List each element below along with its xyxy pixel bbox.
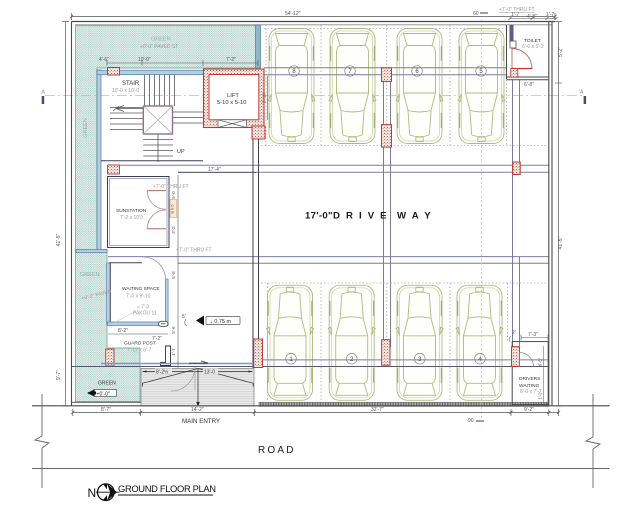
svg-text:UP: UP (177, 149, 185, 155)
svg-text:GREEN: GREEN (80, 272, 100, 278)
svg-text:8'-2½: 8'-2½ (156, 369, 169, 376)
svg-text:9'-7": 9'-7" (56, 370, 62, 380)
svg-text:D R I V E W A Y: D R I V E W A Y (333, 211, 432, 222)
svg-text:7'-3": 7'-3" (528, 332, 538, 338)
svg-text:14'-2": 14'-2" (191, 407, 204, 413)
svg-text:10'-0 x 10'-0: 10'-0 x 10'-0 (112, 88, 139, 94)
svg-text:6'-5": 6'-5" (538, 357, 543, 366)
svg-text:54'-12": 54'-12" (285, 11, 301, 17)
svg-text:1'-7: 1'-7 (171, 348, 176, 356)
svg-text:SUNSTATION: SUNSTATION (116, 208, 147, 214)
svg-text:2': 2' (512, 330, 516, 336)
svg-text:6'-8": 6'-8" (524, 82, 534, 88)
svg-text:+7'-0" THRU FT: +7'-0" THRU FT (153, 184, 189, 190)
svg-text:5'-6: 5'-6 (171, 326, 176, 334)
svg-text:8'-2": 8'-2" (118, 328, 128, 334)
svg-text:4'-6": 4'-6" (99, 57, 109, 63)
svg-text:MAIN ENTRY: MAIN ENTRY (182, 418, 220, 425)
svg-text:GREEN: GREEN (83, 118, 89, 138)
svg-text:4'-8": 4'-8" (527, 14, 537, 20)
svg-text:1'-7: 1'-7 (546, 12, 554, 18)
svg-text:90: 90 (468, 418, 474, 424)
svg-text:LIFT: LIFT (227, 93, 239, 99)
svg-text:7'-0 x 9'-10: 7'-0 x 9'-10 (126, 294, 151, 300)
svg-text:1'-2: 1'-2 (538, 392, 543, 400)
svg-text:7'-12 x 6'-7: 7'-12 x 6'-7 (127, 348, 152, 354)
svg-text:WAITING SPACE: WAITING SPACE (122, 286, 160, 292)
svg-text:5'-10: 5'-10 (262, 93, 267, 103)
svg-text:9'-2": 9'-2" (524, 407, 534, 413)
svg-text:17'-0": 17'-0" (305, 211, 333, 222)
svg-text:B 0-5: B 0-5 (170, 204, 174, 213)
svg-text:13'-0: 13'-0 (204, 370, 215, 376)
svg-text:5': 5' (182, 314, 186, 320)
svg-text:1'-7: 1'-7 (511, 12, 519, 18)
svg-text:+0'-0" PAVED ST: +0'-0" PAVED ST (140, 44, 178, 50)
svg-text:PAKOU 11: PAKOU 11 (133, 311, 157, 317)
svg-text:5'-0: 5'-0 (171, 191, 176, 199)
svg-text:6'-0 x 5'-2: 6'-0 x 5'-2 (522, 44, 544, 50)
svg-text:60: 60 (473, 11, 479, 17)
svg-text:↓ 0.75 m: ↓ 0.75 m (210, 319, 232, 325)
svg-text:32'-7": 32'-7" (371, 407, 384, 413)
svg-text:7'-2 x 10'0: 7'-2 x 10'0 (120, 215, 143, 221)
svg-text:7'-2": 7'-2" (226, 57, 236, 63)
svg-text:N: N (88, 486, 97, 500)
svg-text:17'-4": 17'-4" (208, 167, 221, 173)
svg-text:5-10 x 5-10: 5-10 x 5-10 (217, 100, 246, 106)
svg-text:STAIR: STAIR (122, 81, 140, 87)
svg-text:GREEN: GREEN (151, 37, 171, 43)
svg-text:5'-8: 5'-8 (171, 271, 176, 279)
svg-text:5'-2": 5'-2" (558, 47, 564, 57)
svg-text:+0'-0": +0'-0" (97, 391, 111, 397)
svg-text:GROUND FLOOR PLAN: GROUND FLOOR PLAN (118, 483, 216, 494)
svg-text:8'-7": 8'-7" (101, 407, 111, 413)
svg-text:ROAD: ROAD (258, 445, 296, 456)
svg-text:41'-5": 41'-5" (56, 233, 62, 246)
svg-text:10'-0": 10'-0" (138, 57, 151, 63)
svg-text:DRIVERS: DRIVERS (519, 376, 540, 382)
svg-text:+7'-0" THRU FT: +7'-0" THRU FT (176, 248, 212, 254)
svg-text:41'-5": 41'-5" (558, 236, 564, 249)
svg-text:GREEN: GREEN (98, 381, 116, 387)
svg-text:3'-2: 3'-2 (171, 226, 176, 234)
svg-text:7'-2": 7'-2" (152, 336, 162, 342)
svg-text:'A: 'A (579, 90, 584, 96)
